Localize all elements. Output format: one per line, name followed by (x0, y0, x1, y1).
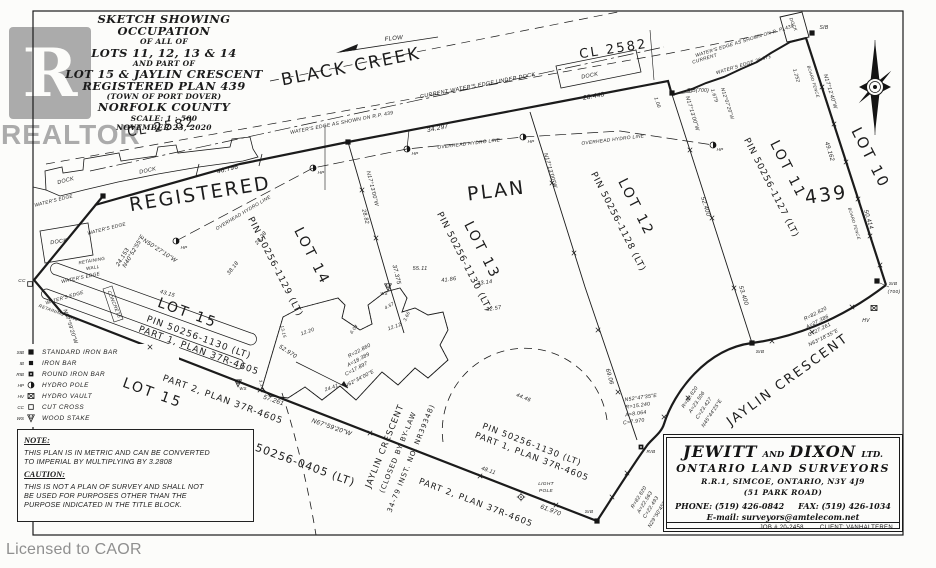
plan-label: CC (18, 278, 26, 284)
note-text-line: THIS PLAN IS IN METRIC AND CAN BE CONVER… (24, 448, 247, 457)
plan-label: DOCK (581, 71, 599, 80)
plan-label: WALL (86, 264, 100, 271)
shore-tie (33, 187, 46, 190)
plan-label: N17°13'00"W (365, 171, 380, 208)
plan-label: WS (239, 386, 246, 391)
plan-label: N67°59'20"W (311, 416, 354, 437)
plan-label: SIB (585, 509, 594, 515)
plan-label: 38.18 (226, 260, 241, 276)
legend-abbr: CC (17, 405, 24, 410)
job-client-strip: JOB # 20-2458 CLIENT: VANHALTEREN (667, 522, 899, 532)
plan-label: 48.11 (480, 466, 496, 477)
plan-label: DOCK (57, 176, 75, 186)
surveyor-address2: (51 PARK ROAD) (667, 488, 899, 497)
sq-l-symbol (874, 278, 879, 283)
plan-label: N67°59'20"W (62, 309, 79, 346)
plan-label: WATER'S EDGE AS SHOWN ON R. P. 439 (695, 23, 795, 59)
firm-name-part: JEWITT (683, 442, 757, 461)
plan-label: 34.297 (426, 123, 449, 134)
hp-symbol (520, 134, 526, 140)
plan-label: 46.796 (216, 164, 239, 176)
dimension-arrow-line (296, 362, 348, 388)
plan-label: POLE (539, 488, 553, 494)
plan-label: WATER'S EDGE (87, 221, 127, 237)
caution-heading: CAUTION: (24, 469, 247, 479)
plan-label: LOT 10 (847, 124, 893, 191)
plan-label: 12.12 (387, 322, 402, 332)
plan-label: 37.375 (391, 264, 402, 285)
plan-label: WATER'S EDGE (61, 271, 101, 285)
title-line: REGISTERED PLAN 439 (58, 80, 270, 92)
plan-label: 33.14 (477, 279, 493, 287)
legend-label: ROUND IRON BAR (42, 371, 105, 378)
plan-label: OVERHEAD HYDRO LINE (581, 133, 645, 147)
note-text-line: TO IMPERIAL BY MULTIPLYING BY 3.2808 (24, 457, 247, 466)
surveyor-subtitle: ONTARIO LAND SURVEYORS (667, 462, 899, 475)
plan-label: HP (181, 245, 188, 250)
plan-label: N12°07'20"W (719, 87, 735, 121)
surveyor-title-box: JEWITT AND DIXON LTD. ONTARIO LAND SURVE… (663, 434, 903, 532)
flow-arrow-head (336, 44, 358, 53)
plan-label: (700) (888, 289, 901, 295)
plan-label: 49.162 (823, 141, 835, 162)
title-line: NOVEMBER 23, 2020 (58, 123, 270, 132)
hp-symbol (310, 165, 316, 171)
plan-label: 1.679 (709, 88, 719, 103)
plan-label: 13.15 (280, 325, 288, 339)
caution-text-line: BE USED FOR PURPOSES OTHER THAN THE (24, 491, 247, 500)
plan-label: PART 2, PLAN 37R-4605 (417, 477, 534, 530)
plan-label: RETAINING WALL (38, 303, 79, 322)
caution-text-line: THIS IS NOT A PLAN OF SURVEY AND SHALL N… (24, 482, 247, 491)
plan-label: 24.41 (323, 383, 339, 394)
legend-abbr: SIB (17, 350, 24, 355)
plan-label: BLACK CREEK (280, 44, 423, 91)
legend-label: IRON BAR (42, 360, 77, 367)
plan-label: BOARD FENCE (806, 65, 821, 99)
plan-label: 32.57 (486, 305, 503, 313)
cc-symbol (28, 282, 33, 287)
plan-label: 3.66 (402, 311, 411, 322)
plan-label: CURRENT WATER'S EDGE UNDER DOCK (420, 72, 536, 100)
hp-symbol (173, 238, 179, 244)
hp-symbol (404, 146, 410, 152)
plan-label: 439 (803, 181, 849, 209)
note-heading: NOTE: (24, 435, 247, 445)
firm-name-part: LTD. (861, 450, 883, 460)
legend-abbr: WS (17, 416, 25, 421)
surveyor-email: E-mail: surveyors@amtelecom.net (667, 512, 899, 522)
job-number: JOB # 20-2458 (760, 525, 804, 531)
plan-label: WATER'S EDGE 26.97± (715, 54, 772, 77)
plan-label: WS (380, 291, 387, 296)
plan-label: WATER'S EDGE (45, 290, 85, 307)
license-text: Licensed to CAOR (6, 541, 142, 559)
title-line: NORFOLK COUNTY (58, 101, 270, 113)
plan-label: 44.46 (515, 392, 532, 404)
lot14-lot13-line (348, 142, 404, 333)
plan-label: 52.400 (699, 196, 711, 217)
plan-label: DOCK (139, 166, 157, 175)
surveyor-firm-name: JEWITT AND DIXON LTD. (667, 442, 899, 461)
plan-label: HV (862, 318, 870, 324)
surveyor-address1: R.R.1, SIMCOE, ONTARIO, N3Y 4J9 (667, 477, 899, 486)
plan-label: OVERHEAD HYDRO LINE (437, 137, 501, 151)
plan-label: WATER'S EDGE (34, 193, 74, 209)
sib-leaders (676, 92, 889, 287)
legend-label: STANDARD IRON BAR (42, 349, 118, 356)
plan-label: C=7.970 (623, 418, 645, 427)
plan-label: PLAN (466, 177, 527, 206)
legend-abbr: IB (20, 361, 24, 366)
plan-label: 41.86 (441, 276, 458, 284)
sq-l-symbol (100, 193, 105, 198)
plan-label: 4.57 (384, 301, 395, 310)
legend-abbr: HV (18, 394, 25, 399)
plan-label: FLOW (384, 35, 404, 43)
title-line: SKETCH SHOWING OCCUPATION (58, 13, 270, 37)
plan-label: WATER'S EDGE AS SHOWN ON R.P. 439 (290, 110, 394, 136)
plan-label: 1.00 (652, 97, 661, 109)
legend-label: HYDRO POLE (42, 382, 89, 389)
legend-label: HYDRO VAULT (42, 393, 93, 400)
plan-label: N17°13'00"W (684, 96, 700, 133)
caution-text-line: PURPOSE INDICATED IN THE TITLE BLOCK. (24, 500, 247, 509)
surveyor-fax: FAX: (519) 426-1034 (798, 501, 891, 511)
plan-label: 1.252 (791, 68, 801, 83)
title-block: SKETCH SHOWING OCCUPATION OF ALL OF LOTS… (58, 13, 270, 132)
standard-iron-bar-icon (28, 349, 33, 354)
legend-label: CUT CROSS (42, 404, 84, 411)
plan-label: 12.20 (300, 327, 315, 337)
client-name: CLIENT: VANHALTEREN (820, 525, 893, 531)
plan-label: HP (528, 139, 535, 144)
plan-label: BOARD FENCE (847, 207, 862, 241)
hp-symbol (710, 142, 716, 148)
survey-sketch-page: R REALTOR (0, 0, 936, 568)
plan-label: SIB(700) (687, 88, 709, 94)
sq-r-symbol (639, 445, 644, 450)
light-symbol (517, 493, 525, 501)
plan-label: LOT 14 (290, 225, 333, 288)
note-caution-box: NOTE: THIS PLAN IS IN METRIC AND CAN BE … (17, 429, 254, 522)
plan-label: 69.06 (604, 368, 614, 386)
plan-label: DOCK (50, 238, 68, 246)
plan-label: 28.82 (360, 208, 370, 225)
fence-tick (616, 390, 620, 394)
iron-bar-icon (29, 361, 33, 365)
plan-label: HP (717, 147, 724, 152)
sq-l-symbol (669, 90, 674, 95)
title-line: SCALE: 1 : 500 (58, 114, 270, 123)
sq-l-symbol (749, 340, 754, 345)
plan-label: SIB (889, 281, 898, 287)
plan-label: 28.448 (581, 91, 605, 102)
plan-label: 52.970 (277, 344, 297, 360)
surveyor-phone: PHONE: (519) 426-0842 (675, 501, 784, 511)
legend-abbr: RIB (16, 372, 24, 377)
surveyor-title-box-inner: JEWITT AND DIXON LTD. ONTARIO LAND SURVE… (666, 437, 900, 529)
plan-label: 55.11 (413, 266, 428, 272)
plan-label: LIGHT (538, 481, 554, 487)
plan-label: SIB (756, 349, 765, 355)
firm-name-part: AND (763, 450, 785, 460)
plan-label: HP (412, 151, 419, 156)
plan-label: 6.04 (349, 323, 359, 334)
hv-symbol (871, 306, 877, 311)
sq-l-symbol (809, 30, 814, 35)
legend-label: WOOD STAKE (42, 415, 90, 422)
legend-abbr: HP (18, 383, 25, 388)
sq-l-symbol (345, 139, 350, 144)
north-compass-icon (853, 40, 897, 135)
round-iron-bar-icon (29, 372, 34, 377)
title-line: LOTS 11, 12, 13 & 14 (58, 47, 270, 59)
firm-name-part: DIXON (789, 442, 856, 461)
plan-label: N17°13'00"W (542, 153, 558, 190)
sq-l-symbol (594, 518, 599, 523)
plan-label: RIB (647, 449, 656, 455)
plan-label: SIB (820, 25, 829, 31)
plan-label: HP (318, 170, 325, 175)
